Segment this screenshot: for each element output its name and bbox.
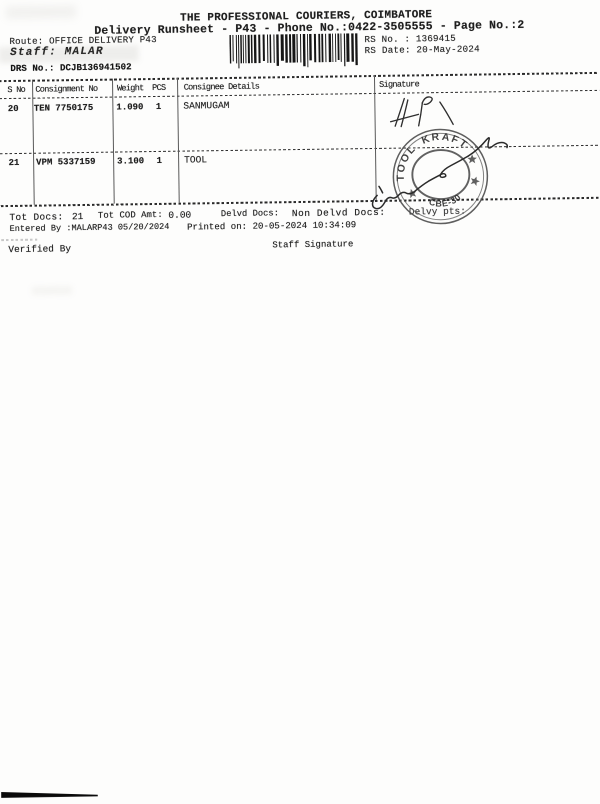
svg-text:CBE-30: CBE-30 — [428, 192, 464, 209]
